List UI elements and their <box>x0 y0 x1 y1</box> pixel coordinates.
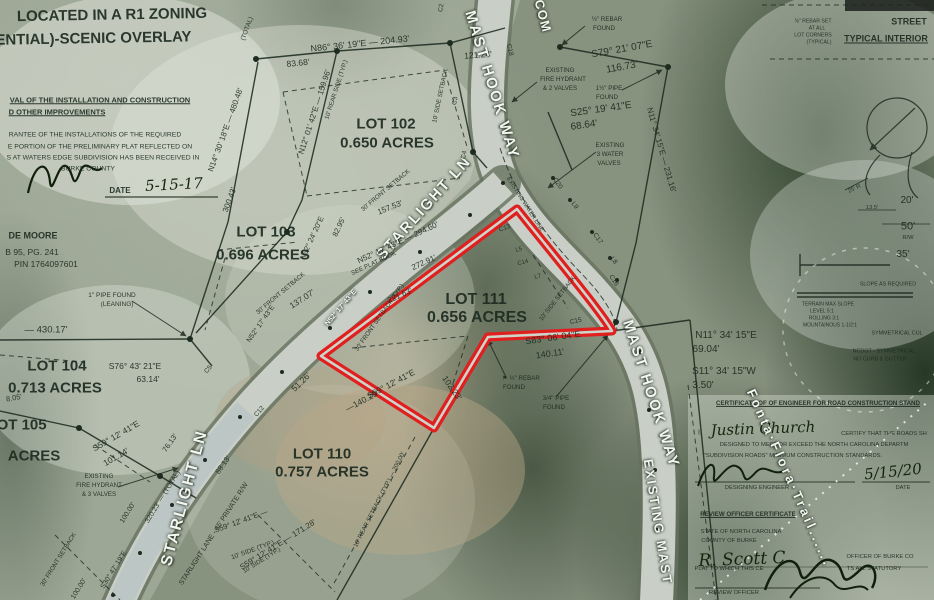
map-label: S83° 06' 04"E <box>525 330 581 347</box>
plat-map: LOCATED IN A R1 ZONING(RESIDENTIAL)-SCEN… <box>0 0 934 600</box>
map-label: E PORTION OF THE PRELIMINARY PLAT REFLEC… <box>8 145 192 152</box>
map-label: SYMMETRICAL CUL <box>871 331 922 336</box>
lot-111-acreage: 0.656 ACRES <box>427 310 527 326</box>
map-label: D OTHER IMPROVEMENTS <box>9 108 106 116</box>
map-label: ½" REBAR <box>592 17 622 23</box>
map-label: ⚑ ½" REBAR <box>502 376 540 382</box>
map-label: 83.68' <box>286 58 310 69</box>
map-label: & 2 VALVES <box>543 86 577 92</box>
map-label: EXISTING <box>546 68 575 74</box>
map-label: 1" PIPE FOUND <box>88 293 135 300</box>
map-label: ROLLING 3:1 <box>809 317 839 322</box>
map-label: N86° 36' 19"E — 204.93' <box>310 34 410 53</box>
map-label: B 95, PG. 241 <box>5 248 58 257</box>
map-label: BURKE COUNTY <box>61 167 115 174</box>
lot-103-acreage: 0.696 ACRES <box>216 248 310 263</box>
map-label: 8.05' <box>5 393 22 403</box>
zoning-note-line2: (RESIDENTIAL)-SCENIC OVERLAY <box>0 29 192 48</box>
map-label: 100.00' <box>70 577 88 600</box>
map-label: (TYPICAL) <box>806 40 831 45</box>
map-label: C14 <box>517 259 529 268</box>
watermark-trail: Fonta·Flora·Trail...... <box>745 387 835 569</box>
map-label: S30° 47' 19"E <box>100 550 129 590</box>
map-label: L7 <box>534 273 542 281</box>
map-label: S25° 19' 41"E <box>570 101 633 119</box>
map-label: N11° 34' 15"E — 231.16' <box>645 107 677 193</box>
map-label: DESIGNING ENGINEER <box>725 486 789 492</box>
map-label: MOUNTAINOUS 1-1/2:1 <box>803 324 857 329</box>
map-label: 30' FRONT SETBACK <box>40 532 78 588</box>
map-label: DE MOORE <box>8 232 57 241</box>
lot-110-acreage: 0.757 ACRES <box>275 465 369 480</box>
map-label: 25' R <box>848 185 863 196</box>
map-label: C17 <box>591 232 603 246</box>
review-cert-title: REVIEW OFFICER CERTIFICATE <box>700 512 795 518</box>
map-label: OFFICER OF BURKE CO <box>847 555 914 561</box>
map-label: C3 <box>452 96 460 105</box>
map-label: EXISTING <box>596 143 625 149</box>
lot-103-name: LOT 103 <box>236 225 295 240</box>
map-label: PIN 1764097601 <box>14 260 78 269</box>
lot-104-acreage: 0.713 ACRES <box>8 381 102 396</box>
map-label: C15 <box>569 318 582 327</box>
map-label: C5 <box>204 365 214 376</box>
map-label: C2 <box>438 3 446 12</box>
map-label: S11° 34' 15"W <box>692 367 756 377</box>
lot-104-name: LOT 104 <box>27 359 86 374</box>
map-label: PLAT TO WHICH THIS CE <box>694 567 763 573</box>
approval-date-handwritten: 5-15-17 <box>145 176 204 194</box>
map-label: RANTEE OF THE INSTALLATIONS OF THE REQUI… <box>9 133 181 140</box>
map-label: —140.29' <box>344 389 380 413</box>
map-label: — 430.17' <box>24 325 67 335</box>
map-label: 272.91' <box>411 254 438 272</box>
street-common-area: COM <box>532 0 553 34</box>
map-label: TS ALL STATUTORY <box>847 567 901 573</box>
map-label: 137.07' <box>288 288 316 310</box>
map-label: C13 <box>498 224 511 234</box>
map-label: COUNTY OF BURKE <box>701 539 757 545</box>
map-label: EXISTING <box>85 474 114 480</box>
map-label: N14° 30' 18"E — 480.48' <box>207 87 245 173</box>
lot-110-name: LOT 110 <box>293 447 351 462</box>
map-label: C12 <box>254 405 267 418</box>
map-label: FIRE HYDRANT <box>76 483 122 489</box>
map-label: S76° 43' 21"E <box>109 362 161 371</box>
map-label: 10' SIDE SETBACK <box>539 275 578 322</box>
map-label: & 3 VALVES <box>82 492 116 498</box>
map-label: L5 <box>515 246 523 254</box>
engineer-date-handwritten: 5/15/20 <box>863 462 922 483</box>
map-label: 63.14' <box>137 375 160 384</box>
map-label: C16 <box>607 274 619 288</box>
lot-105-acreage: ACRES <box>8 449 61 464</box>
map-labels: LOCATED IN A R1 ZONING(RESIDENTIAL)-SCEN… <box>0 0 934 600</box>
map-label: DESIGNED TO MEET OR EXCEED THE NORTH CAR… <box>720 443 909 449</box>
map-label: SLOPE AS REQUIRED <box>860 282 916 287</box>
map-label: 51.26' <box>290 371 312 393</box>
map-label: (LEANING) <box>101 302 134 309</box>
map-label: 102.23' <box>441 374 464 402</box>
map-label: CERTIFY THAT THE ROADS SH <box>841 432 927 438</box>
map-label: 20' <box>900 196 913 206</box>
map-label: C20 <box>551 177 563 191</box>
map-label: N11° 34' 15"E <box>695 331 757 341</box>
map-label: LOT CORNERS <box>794 33 831 38</box>
street-mast-hook-way-lower: MAST HOOK WAY <box>620 318 682 470</box>
map-label: FIRE HYDRANT <box>540 77 586 83</box>
map-label: 157.53' <box>376 199 403 216</box>
street-mast-hook-way-upper: MAST HOOK WAY <box>462 9 522 161</box>
map-label: R/W <box>902 236 913 242</box>
map-label: TERRAIN MAX SLOPE <box>802 303 854 308</box>
map-label: 10' SIDE SETBACK <box>432 69 449 124</box>
map-label: DATE <box>895 486 910 492</box>
map-label: VALVES <box>597 161 620 167</box>
map-label: 3/4" PIPE <box>543 396 570 402</box>
map-label: N32° 24' 20"E <box>299 215 326 261</box>
street-typical-title1: STREET <box>891 18 927 27</box>
map-label: LEVEL 5:1 <box>810 310 834 315</box>
map-label: FOUND <box>543 405 565 411</box>
map-label: L8 <box>608 256 617 266</box>
map-label: 76.13' <box>161 433 179 454</box>
map-label: L9 <box>569 201 578 211</box>
map-label: 116.73' <box>605 60 638 75</box>
map-label: 3 WATER <box>597 152 624 158</box>
map-label: S59° 12' 41"E <box>91 419 141 453</box>
street-existing-mast: EXISTING MAST <box>642 458 675 586</box>
map-label: 82.95' <box>331 216 346 237</box>
map-label: STATE OF NORTH CAROLINA <box>701 530 782 536</box>
map-label: AT ALL <box>809 26 826 31</box>
map-label: 35' <box>896 250 909 260</box>
map-label: S AT WATERS EDGE SUBDIVISION HAS BEEN RE… <box>7 156 200 163</box>
map-label: VAL OF THE INSTALLATION AND CONSTRUCTION <box>10 96 190 104</box>
lot-105-name: LOT 105 <box>0 418 47 433</box>
map-label: FOUND <box>593 26 615 32</box>
map-label: FOUND <box>503 385 525 391</box>
engineer-cert-title: CERTIFICATE OF OF ENGINEER FOR ROAD CONS… <box>716 401 920 407</box>
map-label: 50' <box>901 222 915 233</box>
map-label: (TOTAL) <box>241 16 256 41</box>
map-label: 68.64' <box>570 119 598 133</box>
zoning-note-line1: LOCATED IN A R1 ZONING <box>17 6 208 24</box>
map-label: 88.13' <box>214 455 232 476</box>
map-label: 30' FRONT SETBACK (TYP.) <box>354 283 405 352</box>
map-label: NO CURB & GUTTER <box>853 357 907 362</box>
map-label: REVIEW OFFICER <box>709 591 759 597</box>
map-label: 1½" PIPE <box>596 86 623 92</box>
map-label: 140.11' <box>535 348 565 361</box>
map-label: C18 <box>505 43 514 56</box>
map-label: DATE <box>109 187 130 195</box>
map-label: "SUBDIVISION ROADS" MINIMUM CONSTRUCTION… <box>704 454 882 460</box>
street-typical-title2: TYPICAL INTERIOR <box>844 35 928 44</box>
map-label: ⅝" REBAR SET <box>794 19 831 24</box>
map-label: 13.5' <box>866 206 878 212</box>
map-label: 300.43' <box>222 186 238 213</box>
map-label: 10' REAR SIDE (TYP.) <box>324 60 349 121</box>
map-label: N52° 17' 43"E <box>324 289 358 328</box>
lot-102-acreage: 0.650 ACRES <box>340 136 434 151</box>
map-label: 3.50' <box>692 381 713 391</box>
map-label: I, <box>698 430 702 437</box>
map-label: 101.14' <box>102 446 130 467</box>
lot-102-name: LOT 102 <box>356 117 415 132</box>
map-label: 100.00' <box>119 501 137 524</box>
map-label: S79° 21' 07"E <box>591 40 654 61</box>
map-label: FOUND <box>596 95 618 101</box>
map-label: NCDOT - SYMMETRICAL <box>853 349 916 354</box>
lot-111-name: LOT 111 <box>445 292 506 308</box>
map-label: 69.04' <box>693 345 720 355</box>
